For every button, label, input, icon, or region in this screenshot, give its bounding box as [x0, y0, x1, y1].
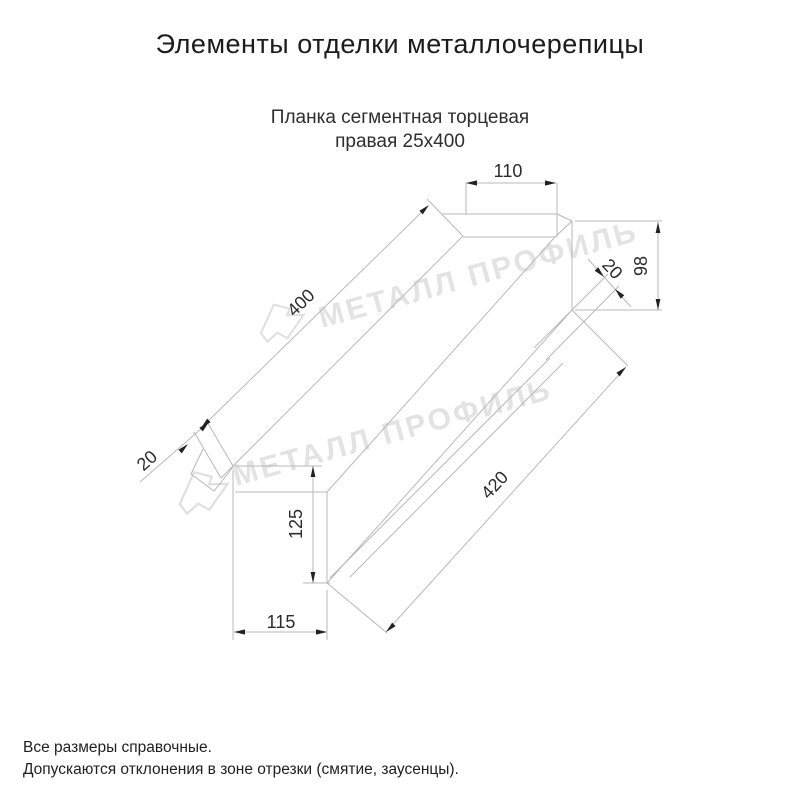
brand-watermark-upper: МЕТАЛЛ ПРОФИЛЬ [255, 215, 643, 345]
dim-label-110: 110 [494, 161, 523, 181]
dim-label-420: 420 [477, 467, 512, 503]
page: Элементы отделки металлочерепицы Планка … [0, 0, 800, 800]
dim-label-98: 98 [631, 256, 651, 276]
dim-label-20-left: 20 [133, 446, 161, 474]
brand-watermark-text: МЕТАЛЛ ПРОФИЛЬ [315, 215, 642, 335]
dim-label-115: 115 [267, 612, 296, 632]
brand-watermark-text: МЕТАЛЛ ПРОФИЛЬ [229, 373, 556, 493]
dim-label-125: 125 [286, 509, 306, 539]
brand-logo-watermark [173, 464, 233, 517]
note-line-2: Допускаются отклонения в зоне отрезки (с… [23, 761, 459, 779]
technical-drawing: МЕТАЛЛ ПРОФИЛЬ МЕТАЛЛ ПРОФИЛЬ [0, 0, 800, 800]
brand-watermark-lower: МЕТАЛЛ ПРОФИЛЬ [173, 373, 556, 517]
note-line-1: Все размеры справочные. [23, 739, 212, 757]
